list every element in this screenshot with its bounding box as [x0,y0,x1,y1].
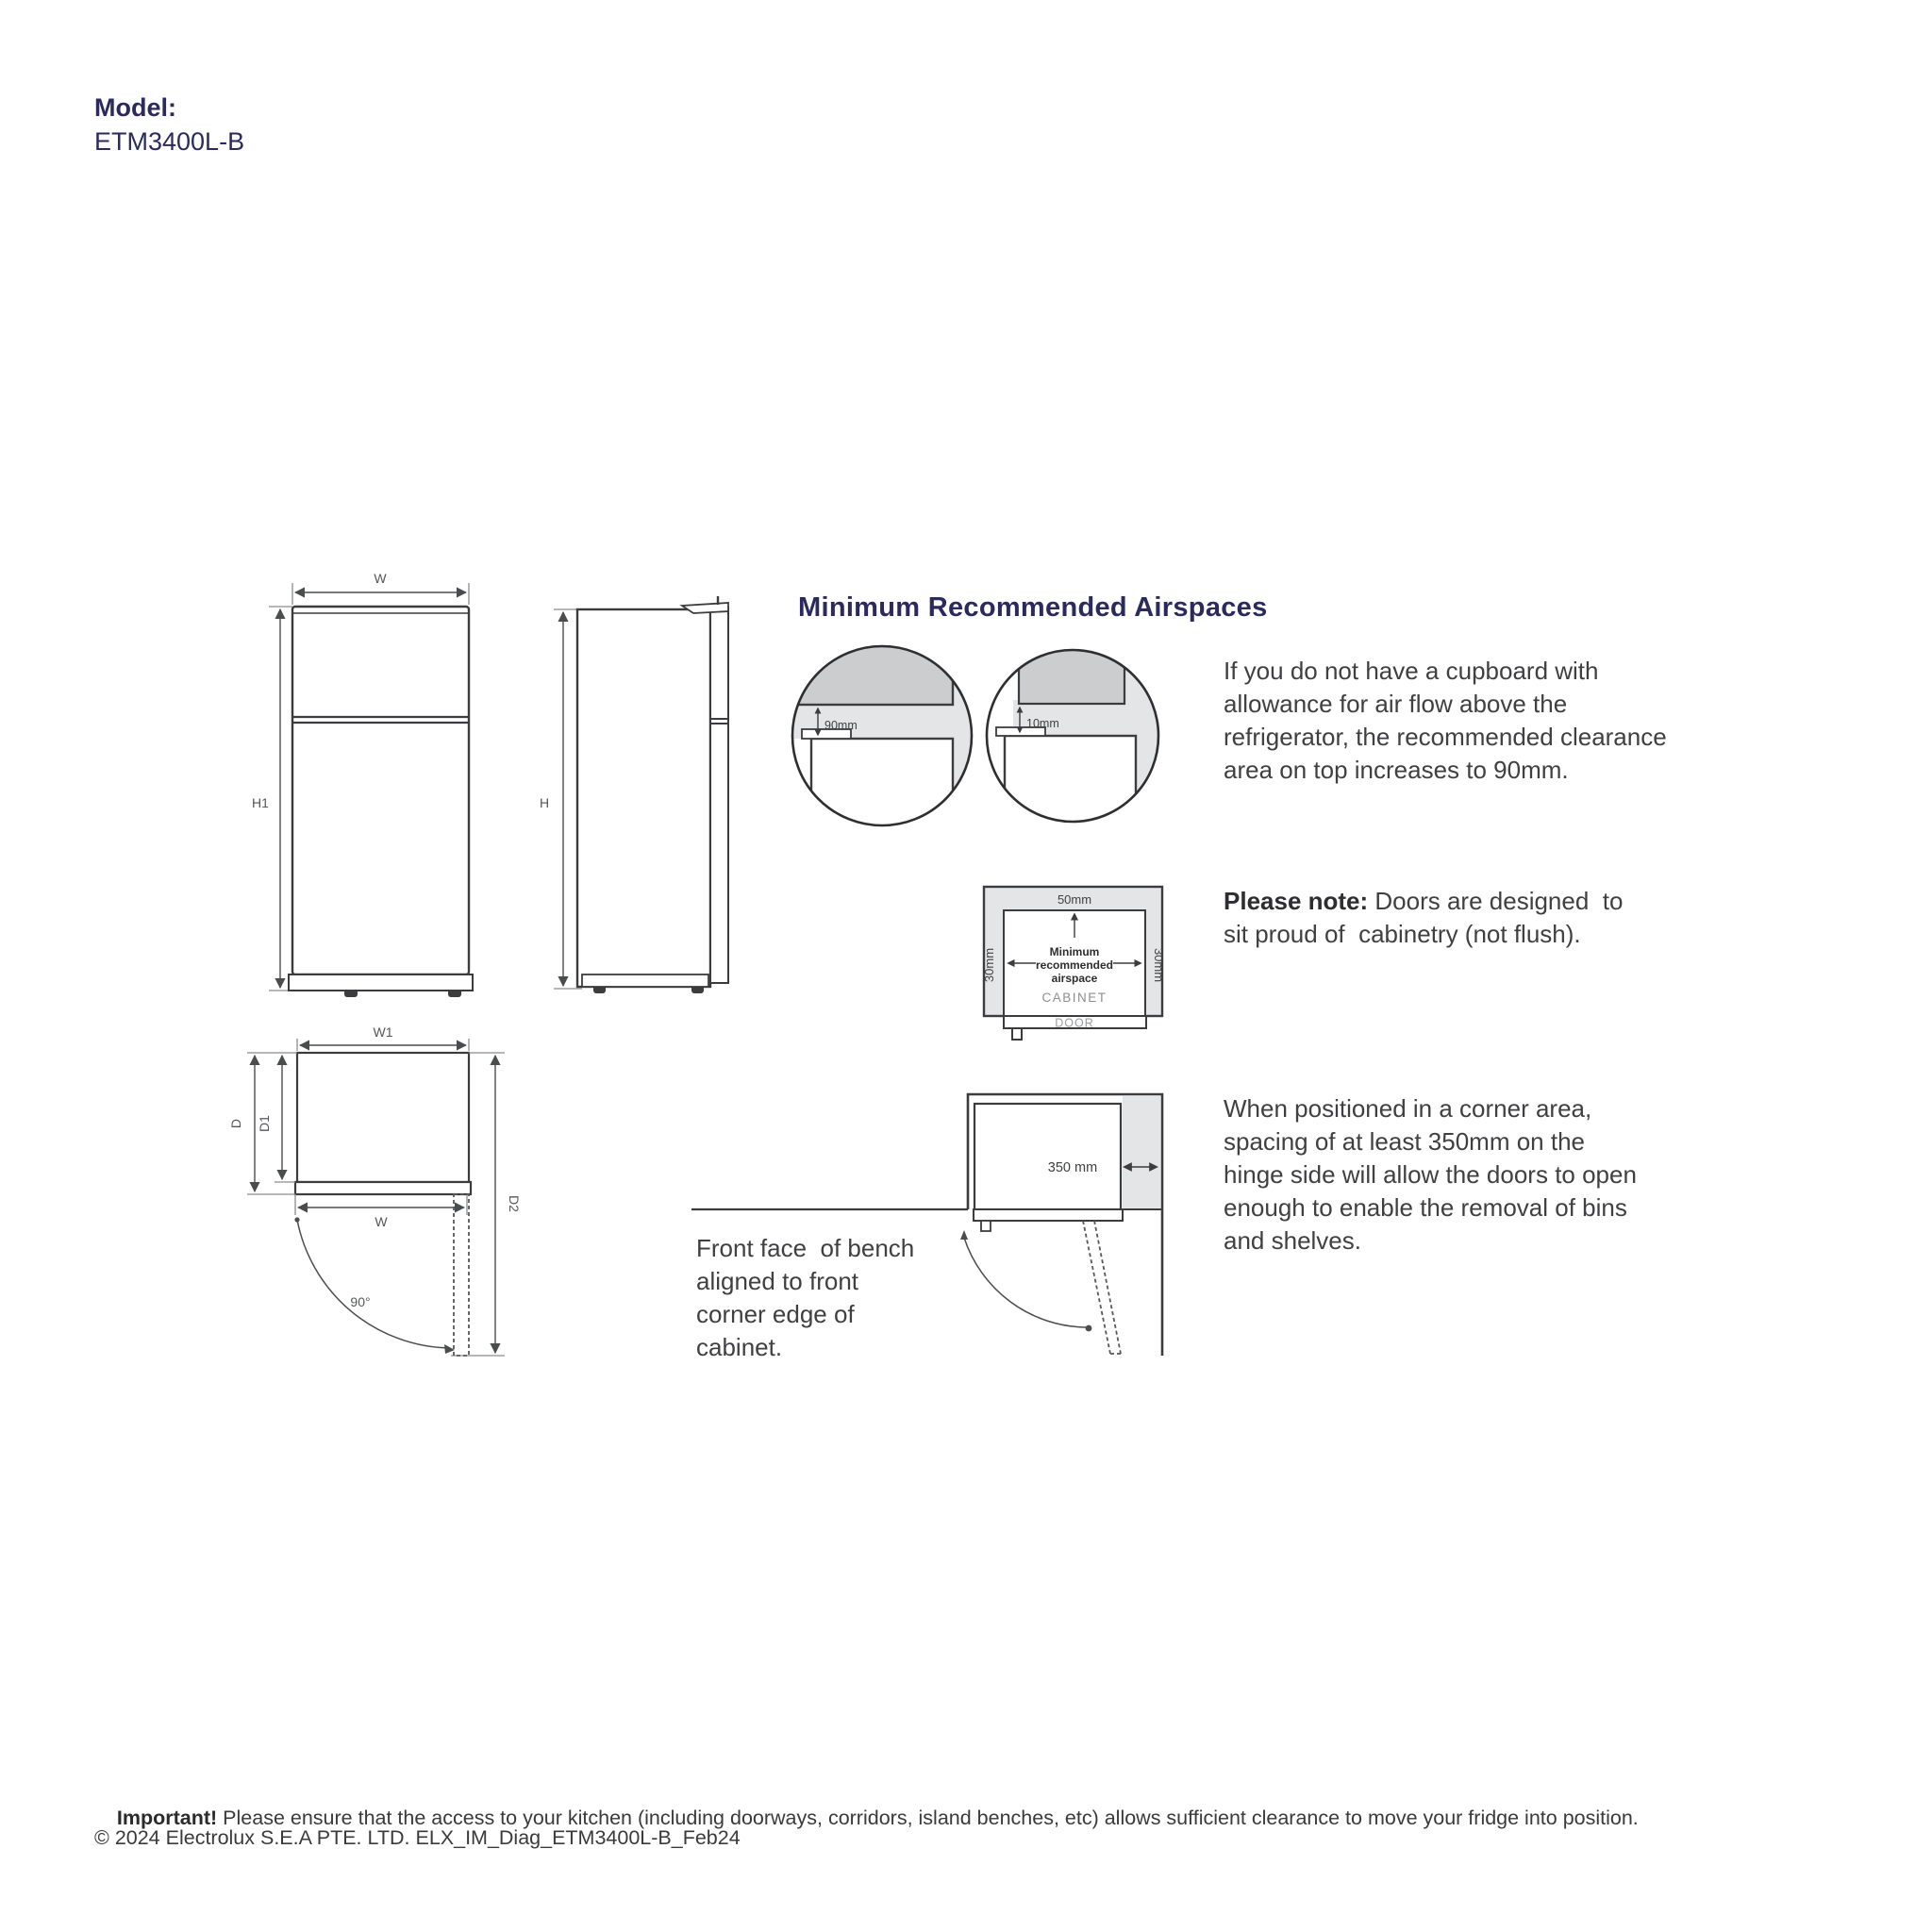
cabinet-label: CABINET [1041,991,1107,1005]
front-view-diagram: W H1 [217,564,500,1017]
fridge-side-door [710,608,728,983]
cupboard-clearance-label: 10mm [1026,717,1059,730]
front-view-svg: W H1 [217,564,500,1017]
fridge-base [582,974,708,987]
side-view-svg: H [524,564,759,1017]
paragraph-line: refrigerator, the recommended clearance [1224,721,1667,754]
arc-start-dot [294,1217,299,1222]
fridge-foot [448,991,461,997]
paragraph-line: area on top increases to 90mm. [1224,754,1667,787]
airspace-circles-diagram: 90mm 10mm [791,630,1177,842]
model-label: Model: [94,91,244,125]
airspace-circles-svg: 90mm 10mm [791,630,1177,842]
section-heading: Minimum Recommended Airspaces [798,592,1268,624]
fridge-top-section [1005,736,1136,842]
door-swing-arc [297,1220,449,1348]
paragraph-line: cabinet. [696,1331,914,1364]
airspace-text-line1: Minimum [1050,945,1100,958]
depth-label: D [228,1119,243,1128]
fridge-plinth [289,974,473,991]
top-view-diagram: W1 D D1 W D2 [208,1026,524,1408]
fridge-front-outline [292,607,469,974]
airflow-paragraph: If you do not have a cupboard with allow… [1224,655,1667,787]
ceiling-block [791,630,953,705]
fridge-top-section [811,739,953,842]
left-clearance-label: 30mm [982,948,996,982]
open-door-dashed [454,1194,469,1356]
front-height-label: H1 [252,795,269,810]
paragraph-line: allowance for air flow above the [1224,688,1667,721]
model-number: ETM3400L-B [94,125,244,158]
hinge-spacing-label: 350 mm [1048,1160,1097,1175]
right-clearance-label: 30mm [1152,948,1166,982]
airspace-text-line2: recommended [1036,958,1113,972]
fridge-foot [593,987,606,993]
depth1-label: D1 [257,1115,272,1132]
side-view-diagram: H [524,564,759,1017]
paragraph-line: enough to enable the removal of bins [1224,1191,1637,1224]
note-label: Please note: [1224,887,1368,915]
fridge-foot [344,991,358,997]
page: Model: ETM3400L-B W H1 [0,0,1932,1932]
fridge-door-topview [295,1182,471,1194]
paragraph-line: spacing of at least 350mm on the [1224,1125,1637,1158]
fridge-body-topview [297,1053,469,1182]
paragraph-line: hinge side will allow the doors to open [1224,1158,1637,1191]
cupboard-block [1019,630,1124,704]
top-view-svg: W1 D D1 W D2 [208,1026,524,1408]
paragraph-line: Front face of bench [696,1232,914,1265]
door-label: DOOR [1055,1017,1094,1030]
hinge-spacing-area [1123,1096,1160,1209]
top-width1-label: W1 [374,1026,393,1040]
fridge-side-outline [577,609,710,987]
paragraph-line: corner edge of [696,1298,914,1331]
paragraph-line: aligned to front [696,1265,914,1298]
door-swing-arc [964,1238,1086,1327]
top-width-label: W [375,1214,388,1229]
door-angle-label: 90° [350,1294,370,1309]
top-clearance-label: 50mm [1058,892,1091,907]
corner-paragraph: When positioned in a corner area, spacin… [1224,1092,1637,1257]
side-height-label: H [540,795,549,810]
fridge-door-band [974,1209,1123,1221]
door-hinge [1012,1028,1022,1040]
paragraph-line: and shelves. [1224,1224,1637,1257]
bench-note: Front face of bench aligned to front cor… [696,1232,914,1364]
no-cupboard-clearance-label: 90mm [824,719,858,732]
note-paragraph: Please note: Doors are designed to sit p… [1224,885,1623,951]
open-door-dashed [1083,1221,1110,1354]
depth2-label: D2 [507,1195,522,1212]
arc-start-arrow [960,1230,968,1240]
paragraph-line: When positioned in a corner area, [1224,1092,1637,1125]
airspace-text-line3: airspace [1052,972,1098,985]
paragraph-line: If you do not have a cupboard with [1224,655,1667,688]
cupboard-scene: 10mm [984,630,1177,842]
arc-end-dot [1086,1325,1092,1332]
cabinet-airspace-diagram: 50mm 30mm 30mm Minimum recommended airsp… [981,875,1174,1050]
paragraph-line: sit proud of cabinetry (not flush). [1224,918,1623,951]
cabinet-airspace-svg: 50mm 30mm 30mm Minimum recommended airsp… [981,875,1174,1050]
paragraph-line: Please note: Doors are designed to [1224,885,1623,918]
open-door-dashed [1094,1221,1121,1354]
front-width-label: W [374,571,387,586]
footer-copyright: © 2024 Electrolux S.E.A PTE. LTD. ELX_IM… [94,1826,741,1850]
fridge-top-outline [974,1104,1121,1209]
fridge-foot [691,987,704,993]
door-hinge [981,1221,991,1231]
note-text: Doors are designed to [1368,887,1623,915]
model-block: Model: ETM3400L-B [94,91,244,158]
